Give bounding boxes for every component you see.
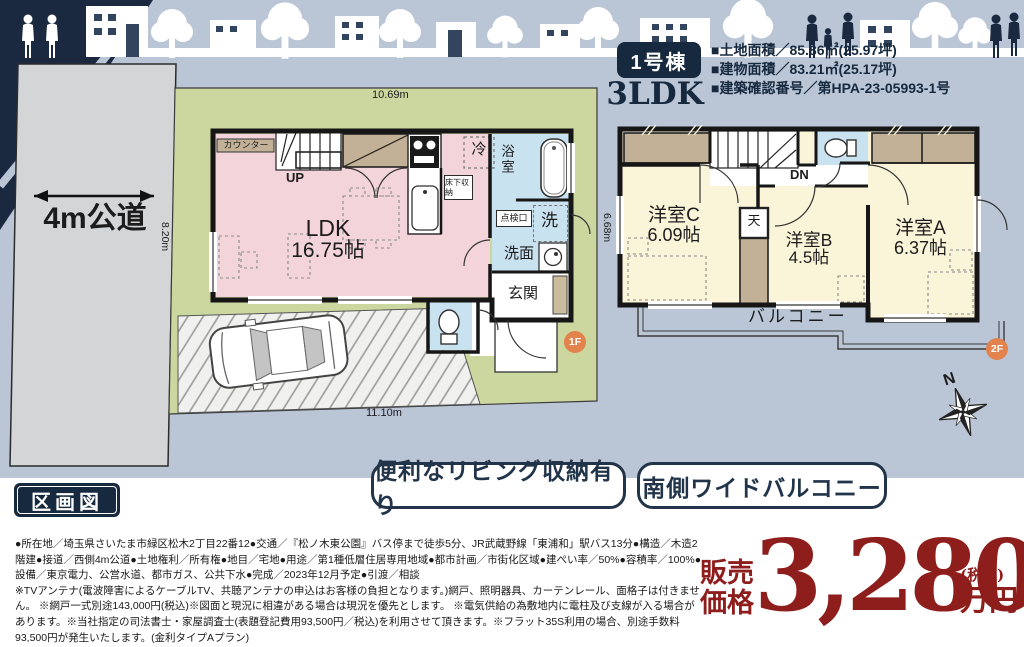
stairs-up-label: UP: [286, 171, 304, 185]
flyer-page: 1号棟 3LDK ■土地面積／85.86㎡(25.97坪) ■建物面積／83.2…: [0, 0, 1024, 647]
description-paragraph-1: ●所在地／埼玉県さいたま市緑区松木2丁目22番12●交通／『松ノ木東公園』バス停…: [15, 537, 703, 584]
section-title-text: 区画図: [17, 486, 117, 514]
section-title-badge: 区画図: [14, 483, 120, 517]
price-unit: 万円: [960, 584, 1018, 616]
ceiling-storage-label: 天: [746, 214, 762, 228]
room-c-size: 6.09帖: [618, 226, 730, 245]
toilet-icon-2f: [825, 139, 856, 157]
floor2-badge: 2F: [986, 338, 1008, 360]
floor1-badge: 1F: [564, 331, 586, 353]
feature-banner-balcony: 南側ワイドバルコニー: [637, 462, 887, 509]
description-paragraph-2: ※TVアンテナ(電波障害によるケーブルTV、共聴アンテナの申込はお客様の負担とな…: [15, 584, 703, 646]
counter-label: カウンター: [220, 141, 272, 150]
ldk-name: LDK: [268, 216, 388, 240]
kitchen-counter: [408, 134, 441, 234]
dim-bottom-label: 11.10m: [366, 408, 402, 420]
dim-left-label: 8.20m: [159, 222, 170, 251]
price-label-line2: 価格: [700, 589, 754, 619]
price-tax-note: (税込): [960, 567, 1018, 584]
price-unit-block: (税込) 万円: [960, 567, 1018, 616]
fridge-label: 冷: [464, 142, 494, 158]
property-specs: ■土地面積／85.86㎡(25.97坪) ■建物面積／83.21㎡(25.17坪…: [711, 41, 950, 98]
building-number-badge: 1号棟: [617, 42, 701, 78]
inspection-hatch-label: 点検口: [496, 210, 532, 227]
feature-banner-storage: 便利なリビング収納有り: [371, 462, 626, 509]
road-label: 4m公道: [30, 203, 160, 235]
price-label: 販売 価格: [700, 559, 754, 619]
balcony-label: バルコニー: [748, 308, 848, 326]
room-c-label: 洋室C 6.09帖: [618, 206, 730, 245]
room-b-size: 4.5帖: [766, 249, 852, 267]
stairs-down-label: DN: [790, 168, 809, 182]
spec-land-area: ■土地面積／85.86㎡(25.97坪): [711, 41, 950, 60]
bathtub-icon: [541, 139, 567, 197]
washing-machine-icon: [539, 243, 567, 271]
stairs-down-icon: [710, 131, 798, 168]
price-label-line1: 販売: [700, 559, 754, 589]
road-area: [10, 64, 176, 466]
property-description: ●所在地／埼玉県さいたま市緑区松木2丁目22番12●交通／『松ノ木東公園』バス停…: [15, 537, 703, 646]
plan-type-label: 3LDK: [605, 76, 705, 112]
spec-confirmation-number: ■建築確認番号／第HPA-23-05993-1号: [711, 79, 950, 98]
washer-outline: [533, 205, 568, 242]
stairs-up-icon: [276, 132, 341, 170]
room-c-name: 洋室C: [618, 206, 730, 226]
bathroom-label: 浴室: [499, 144, 513, 175]
room-b-label: 洋室B 4.5帖: [766, 231, 852, 267]
washroom-label: 洗面: [504, 246, 534, 262]
stove-icon: [410, 136, 439, 168]
room-a-name: 洋室A: [868, 219, 973, 239]
room-a-label: 洋室A 6.37帖: [868, 219, 973, 258]
dim-top-label: 10.69m: [372, 90, 409, 102]
underfloor-storage-label: 床下収納: [444, 175, 473, 200]
ldk-size: 16.75帖: [268, 240, 388, 262]
toilet-icon-1f: [439, 310, 459, 344]
entrance-label: 玄関: [508, 286, 538, 302]
spec-building-area: ■建物面積／83.21㎡(25.17坪): [711, 60, 950, 79]
room-b-name: 洋室B: [766, 231, 852, 249]
sink-icon: [412, 186, 438, 230]
closet-1f: [343, 134, 410, 167]
dim-left-2f-label: 6.68m: [601, 213, 612, 242]
room-a-size: 6.37帖: [868, 239, 973, 258]
ldk-label: LDK 16.75帖: [268, 216, 388, 262]
